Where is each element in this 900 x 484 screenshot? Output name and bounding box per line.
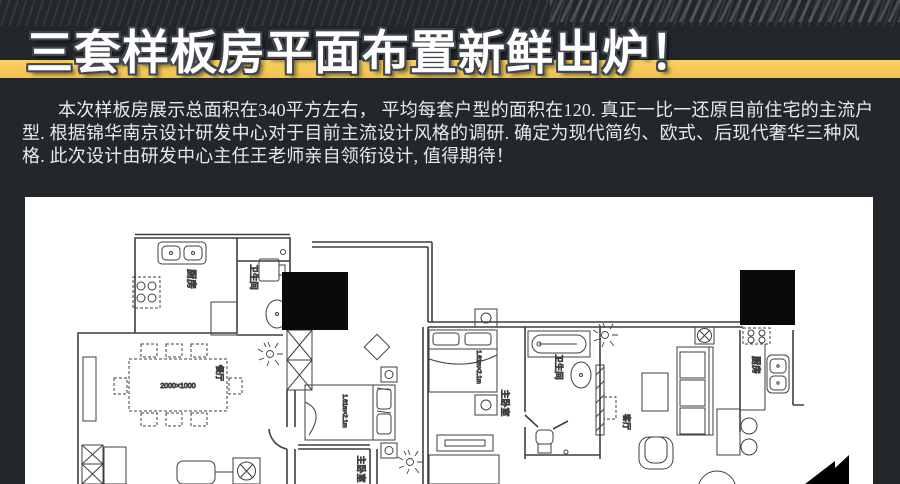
bed2-size: 1.61m×2.1m	[475, 350, 481, 384]
armchair-icon	[639, 437, 673, 469]
kitchen-left: 厨房	[133, 242, 237, 335]
bathroom-mid-group: 卫生间	[528, 331, 616, 454]
bed1	[305, 385, 395, 440]
bedroom-left-group: 1.61m×2.1m 主卧室	[305, 334, 397, 482]
washbasin-icon	[571, 362, 591, 388]
stove-burners	[137, 282, 156, 302]
bedroom-mid-label: 主卧室	[500, 389, 511, 416]
living-group: 客厅	[593, 323, 736, 484]
stove-icon	[743, 328, 770, 344]
page-title: 三套样板房平面布置新鲜出炉！	[26, 14, 698, 83]
kitchen-right-group: 厨房	[717, 328, 789, 455]
bar-stool	[741, 418, 757, 434]
light-burst-icon	[398, 450, 423, 474]
deco-diamond	[364, 334, 389, 359]
kitchen-left-label: 厨房	[185, 269, 198, 289]
bar-stool	[741, 439, 757, 455]
stove-icon	[133, 277, 160, 308]
sofa-icon	[677, 347, 713, 435]
bedroom-mid-group: 1.61m×2.1m 主卧室	[398, 309, 511, 484]
toilet-icon	[536, 430, 568, 454]
kitchen-cabinet	[211, 302, 237, 335]
bed2	[429, 330, 497, 392]
door-knob	[281, 250, 286, 255]
coffee-table	[642, 373, 668, 411]
washing-machine-icon	[259, 259, 285, 281]
stove-burners	[748, 330, 765, 343]
washbasin-drain	[276, 313, 279, 316]
blanket-line	[305, 402, 316, 435]
bathtub-icon	[528, 331, 590, 357]
sideboard	[83, 357, 96, 421]
ceiling-fan-icon	[695, 327, 714, 344]
bed1-size: 1.61m×2.1m	[341, 394, 347, 428]
dresser-icon	[429, 435, 499, 484]
bathroom-mid-label: 卫生间	[554, 354, 564, 380]
intro-paragraph: 本次样板房展示总面积在340平方左右， 平均每套户型的面积在120. 真正一比一…	[22, 99, 880, 168]
arrow-icon	[805, 455, 849, 484]
round-table	[698, 471, 736, 484]
kitchen-right-label: 厨房	[751, 356, 762, 374]
pouf-and-fan	[177, 458, 260, 484]
censored-block-right	[740, 270, 795, 325]
bar-counter	[717, 409, 740, 455]
floorplan-image[interactable]: 厨房 卫生间 2000×1000 餐厅	[25, 197, 873, 484]
dining-area: 2000×1000 餐厅	[83, 342, 283, 484]
bedroom-left-label: 主卧室	[356, 455, 367, 482]
double-sink-icon	[767, 355, 789, 393]
dining-label: 餐厅	[215, 365, 224, 381]
living-label: 客厅	[622, 414, 632, 430]
dining-table-size: 2000×1000	[160, 383, 195, 390]
bathroom-left-label: 卫生间	[249, 264, 259, 290]
double-sink-icon	[158, 242, 206, 264]
censored-block-left	[282, 272, 348, 330]
light-burst-icon	[258, 342, 283, 366]
